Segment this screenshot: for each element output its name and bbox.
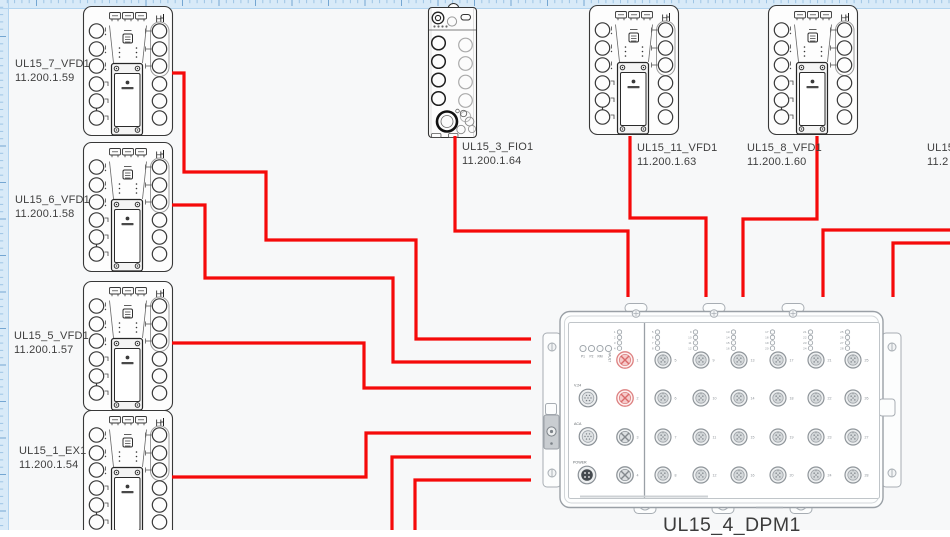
device-label-ul15-11-vfd1: UL15_11_VFD1 11.200.1.63 [637, 142, 717, 169]
svg-text:13: 13 [726, 330, 730, 334]
svg-text:3: 3 [637, 436, 639, 440]
power-port-circle [437, 112, 457, 132]
status-led [588, 345, 594, 351]
svg-text:27: 27 [865, 436, 869, 440]
svg-text:18: 18 [790, 397, 794, 401]
svg-text:23: 23 [828, 436, 832, 440]
port-led [731, 341, 735, 345]
device-ul15-5-vfd1[interactable]: H [84, 282, 173, 411]
svg-text:1: 1 [637, 359, 639, 363]
port-led [845, 335, 849, 339]
port-led [731, 346, 735, 350]
svg-text:24: 24 [803, 346, 807, 350]
port-led [693, 346, 697, 350]
svg-text:23: 23 [803, 341, 807, 345]
device-label-ul15-4-dpm1: UL15_4_DPM1 [663, 514, 801, 537]
port-led [770, 330, 774, 334]
brand-logo-icon [632, 80, 636, 84]
device-name: UL15 [927, 142, 950, 156]
svg-text:RM: RM [598, 355, 603, 359]
svg-text:4: 4 [637, 474, 639, 478]
brand-logo-icon [126, 81, 130, 85]
device-label-right-edge: UL15 11.2 [927, 142, 950, 169]
svg-text:P2: P2 [590, 355, 594, 359]
port-led [693, 341, 697, 345]
port-led [731, 335, 735, 339]
device-label-ul15-8-vfd1: UL15_8_VFD1 11.200.1.60 [747, 142, 822, 169]
device-label-ul15-1-ex1: UL15_1_EX1 11.200.1.54 [19, 445, 86, 472]
svg-text:16: 16 [726, 346, 730, 350]
svg-text:15: 15 [751, 436, 755, 440]
status-led [580, 345, 586, 351]
ruler-left [0, 0, 8, 530]
svg-text:10: 10 [713, 397, 717, 401]
svg-text:12: 12 [688, 346, 692, 350]
device-ul15-6-vfd1[interactable]: H [84, 143, 173, 272]
device-name: UL15_1_EX1 [19, 445, 86, 459]
device-label-ul15-5-vfd1: UL15_5_VFD1 11.200.1.57 [14, 330, 89, 357]
svg-text:ACA: ACA [574, 422, 582, 426]
svg-text:26: 26 [840, 336, 844, 340]
port-led [808, 346, 812, 350]
device-name: UL15_8_VFD1 [747, 142, 822, 156]
device-ul15-3-fio1[interactable] [429, 4, 477, 138]
device-ip: 11.200.1.60 [747, 156, 822, 170]
port-led [770, 346, 774, 350]
svg-text:5: 5 [675, 359, 677, 363]
svg-text:POWER: POWER [573, 461, 587, 465]
port-led [770, 341, 774, 345]
device-ul15-4-dpm1[interactable]: P1P2RMFAULTV.24ACAPOWER11223344556677889… [543, 304, 901, 514]
device-name: UL15_7_VFD1 [15, 58, 90, 72]
device-ip: 11.200.1.59 [15, 72, 90, 86]
svg-text:28: 28 [865, 474, 869, 478]
port-led [845, 341, 849, 345]
svg-text:2: 2 [637, 397, 639, 401]
device-ul15-8-vfd1[interactable]: H [769, 6, 858, 135]
svg-text:12: 12 [713, 474, 717, 478]
svg-text:25: 25 [840, 330, 844, 334]
brand-logo-icon [811, 80, 815, 84]
diagram-canvas: HHHHHHP1P2RMFAULTV.24ACAPOWER11223344556… [0, 0, 950, 530]
svg-text:19: 19 [790, 436, 794, 440]
port-led [617, 335, 621, 339]
status-led [597, 345, 603, 351]
device-name: UL15_6_VFD1 [15, 194, 90, 208]
port-led [655, 346, 659, 350]
svg-text:18: 18 [765, 336, 769, 340]
svg-text:8: 8 [675, 474, 677, 478]
svg-text:26: 26 [865, 397, 869, 401]
svg-text:11: 11 [713, 436, 717, 440]
device-ip: 11.200.1.58 [15, 208, 90, 222]
device-label-ul15-7-vfd1: UL15_7_VFD1 11.200.1.59 [15, 58, 90, 85]
port-led [655, 341, 659, 345]
diagram-svg: HHHHHHP1P2RMFAULTV.24ACAPOWER11223344556… [0, 0, 950, 530]
svg-text:P1: P1 [581, 355, 585, 359]
device-ul15-1-ex1[interactable]: H [84, 411, 173, 531]
port-led [617, 341, 621, 345]
status-window-icon [461, 15, 471, 21]
svg-text:9: 9 [713, 359, 715, 363]
device-name: UL15_3_FIO1 [462, 141, 533, 155]
display-module [797, 63, 828, 135]
port-led [808, 341, 812, 345]
svg-text:V.24: V.24 [574, 384, 581, 388]
svg-text:22: 22 [828, 397, 832, 401]
device-ip: 11.200.1.64 [462, 155, 533, 169]
svg-text:14: 14 [726, 336, 730, 340]
device-ip: 11.200.1.54 [19, 459, 86, 473]
port-led [770, 335, 774, 339]
device-ip: 11.200.1.57 [14, 344, 89, 358]
port-led [731, 330, 735, 334]
display-module [112, 468, 143, 531]
svg-text:24: 24 [828, 474, 832, 478]
port-led [808, 335, 812, 339]
svg-text:17: 17 [790, 359, 794, 363]
port-led [845, 330, 849, 334]
port-led [808, 330, 812, 334]
svg-text:16: 16 [751, 474, 755, 478]
device-ip: 11.200.1.63 [637, 156, 717, 170]
display-module [112, 339, 143, 411]
svg-text:28: 28 [840, 346, 844, 350]
svg-text:7: 7 [675, 436, 677, 440]
din-clip [544, 415, 559, 449]
device-label-ul15-3-fio1: UL15_3_FIO1 11.200.1.64 [462, 141, 533, 168]
svg-text:FAULT: FAULT [608, 353, 612, 363]
port-led [693, 330, 697, 334]
svg-text:13: 13 [751, 359, 755, 363]
port-led [617, 330, 621, 334]
svg-text:21: 21 [803, 330, 807, 334]
svg-text:10: 10 [688, 336, 692, 340]
brand-logo-icon [126, 485, 130, 489]
device-name: UL15_11_VFD1 [637, 142, 717, 156]
svg-text:17: 17 [765, 330, 769, 334]
device-ul15-7-vfd1[interactable]: H [84, 7, 173, 136]
display-module [112, 64, 143, 136]
svg-text:22: 22 [803, 336, 807, 340]
svg-text:19: 19 [765, 341, 769, 345]
svg-text:15: 15 [726, 341, 730, 345]
port-led [617, 346, 621, 350]
svg-text:20: 20 [765, 346, 769, 350]
display-module [112, 200, 143, 272]
device-ul15-11-vfd1[interactable]: H [590, 6, 679, 135]
svg-text:27: 27 [840, 341, 844, 345]
port-led [655, 335, 659, 339]
brand-logo-icon [126, 217, 130, 221]
status-led [605, 345, 611, 351]
svg-text:21: 21 [828, 359, 832, 363]
svg-text:14: 14 [751, 397, 755, 401]
device-ip: 11.2 [927, 156, 950, 170]
brand-logo-icon [126, 356, 130, 360]
svg-text:11: 11 [688, 341, 691, 345]
svg-text:25: 25 [865, 359, 869, 363]
svg-text:6: 6 [675, 397, 677, 401]
port-led [845, 346, 849, 350]
port-led [693, 335, 697, 339]
svg-text:20: 20 [790, 474, 794, 478]
device-name: UL15_5_VFD1 [14, 330, 89, 344]
port-led [655, 330, 659, 334]
device-label-ul15-6-vfd1: UL15_6_VFD1 11.200.1.58 [15, 194, 90, 221]
display-module [618, 63, 649, 135]
